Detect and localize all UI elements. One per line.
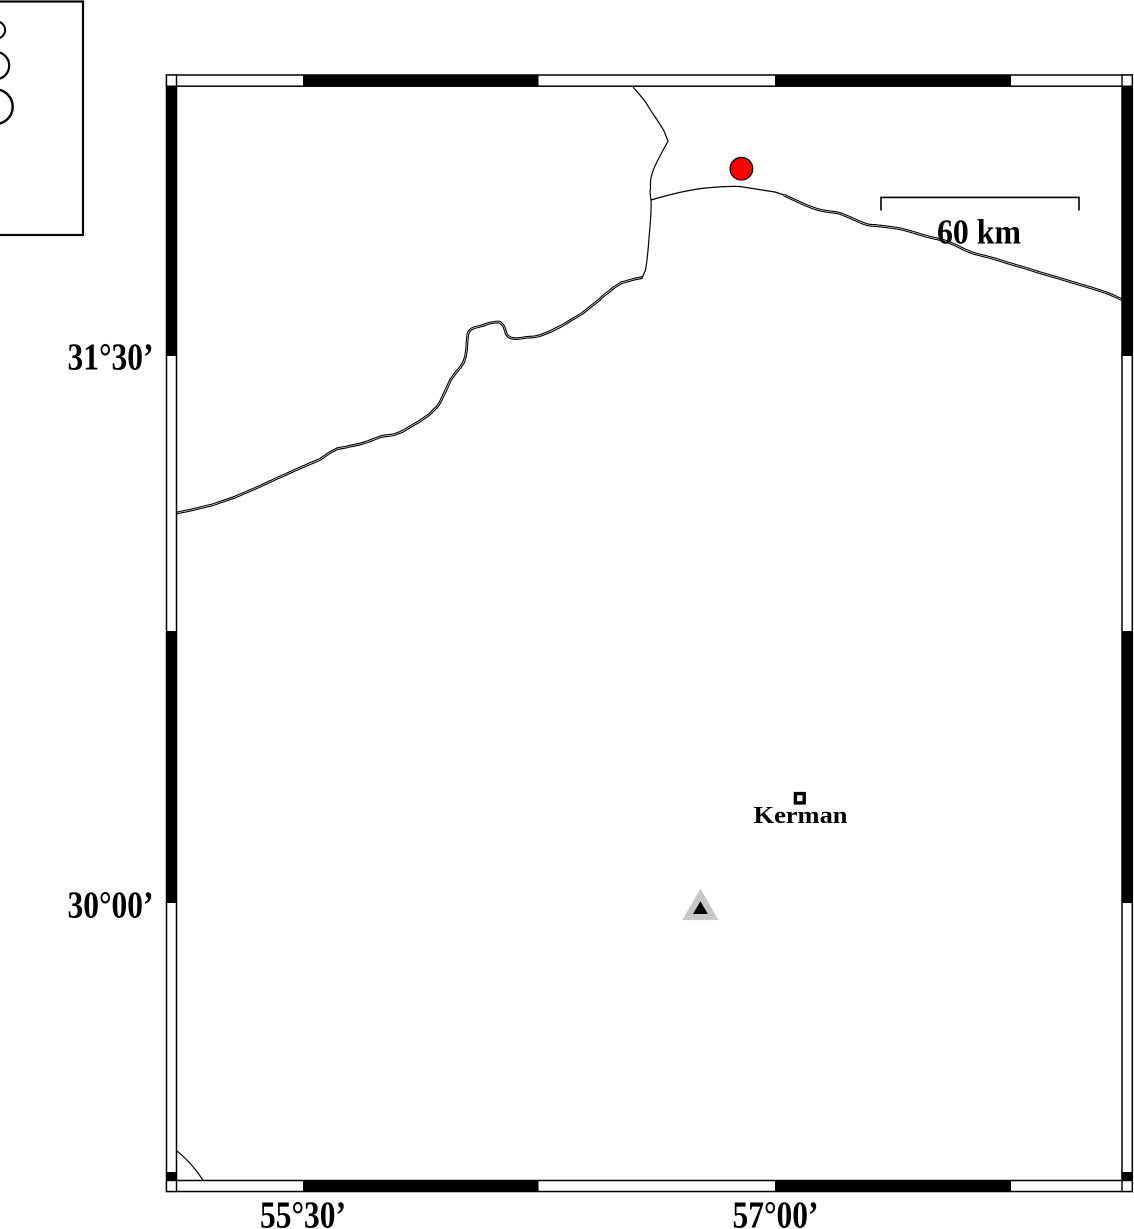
svg-text:30°00’: 30°00’	[68, 885, 154, 927]
svg-text:60 km: 60 km	[937, 214, 1021, 252]
svg-text:57°00’: 57°00’	[733, 1195, 819, 1229]
svg-text:31°30’: 31°30’	[68, 337, 154, 379]
svg-text:Kerman: Kerman	[754, 802, 848, 829]
svg-text:55°30’: 55°30’	[260, 1195, 346, 1229]
